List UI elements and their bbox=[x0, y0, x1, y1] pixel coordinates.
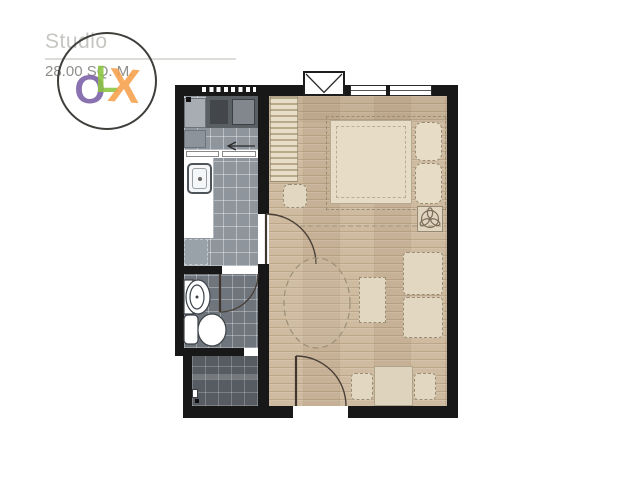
kitchen-sink-drain bbox=[198, 177, 202, 181]
balcony-faucet bbox=[192, 389, 198, 398]
bed-pillow-bottom bbox=[415, 163, 442, 204]
lounge-chair-bottom bbox=[403, 297, 443, 338]
stove bbox=[232, 99, 255, 125]
wall-bottom-right-segment bbox=[348, 406, 458, 418]
window bbox=[350, 85, 432, 96]
wall-bathroom-bottom bbox=[175, 348, 244, 356]
kitchen-drain-dot bbox=[186, 97, 191, 102]
wall-balcony-left bbox=[183, 348, 192, 418]
wall-bathroom-top bbox=[175, 266, 222, 274]
kitchen-floor-mat bbox=[184, 239, 208, 265]
wall-bottom-left-segment bbox=[183, 406, 293, 418]
wall-right bbox=[447, 85, 458, 418]
balcony-tile-band bbox=[192, 374, 258, 379]
kitchen-sink-basin bbox=[192, 168, 207, 189]
olx-letter-x: X bbox=[106, 62, 141, 112]
wall-mid-vertical-upper bbox=[258, 85, 269, 214]
dining-chair-right bbox=[414, 373, 436, 400]
bed-pillow-top bbox=[415, 122, 442, 161]
bathroom-floor bbox=[184, 274, 258, 348]
washer bbox=[184, 130, 206, 148]
sliding-door-panel-right bbox=[222, 151, 256, 157]
olx-watermark-logo: OLX bbox=[57, 32, 157, 130]
balcony-floor bbox=[192, 356, 258, 406]
olx-letters: OLX bbox=[74, 57, 139, 105]
wall-mid-vertical-lower bbox=[258, 264, 269, 406]
fan-stand bbox=[417, 206, 443, 232]
side-table bbox=[283, 184, 307, 208]
sliding-door-panel-left bbox=[186, 151, 219, 157]
wardrobe-rack bbox=[270, 96, 298, 182]
wall-left bbox=[175, 85, 184, 356]
vent-block-strip bbox=[200, 85, 258, 96]
floor-plan-page: Studio 28.00 SQ. M. OLX bbox=[0, 0, 640, 480]
vent-slots bbox=[202, 87, 256, 92]
ac-unit bbox=[303, 71, 345, 96]
balcony-drain-dot bbox=[195, 399, 199, 403]
bed-mattress-stitch bbox=[336, 126, 406, 198]
fridge bbox=[184, 98, 206, 128]
dining-chair-left bbox=[351, 373, 373, 400]
coffee-table bbox=[359, 277, 386, 323]
counter-appliance bbox=[210, 100, 228, 124]
dining-table bbox=[374, 366, 413, 406]
bed-mattress bbox=[330, 120, 412, 204]
kitchen-sink-icon bbox=[187, 163, 212, 194]
lounge-chair-top bbox=[403, 252, 443, 295]
